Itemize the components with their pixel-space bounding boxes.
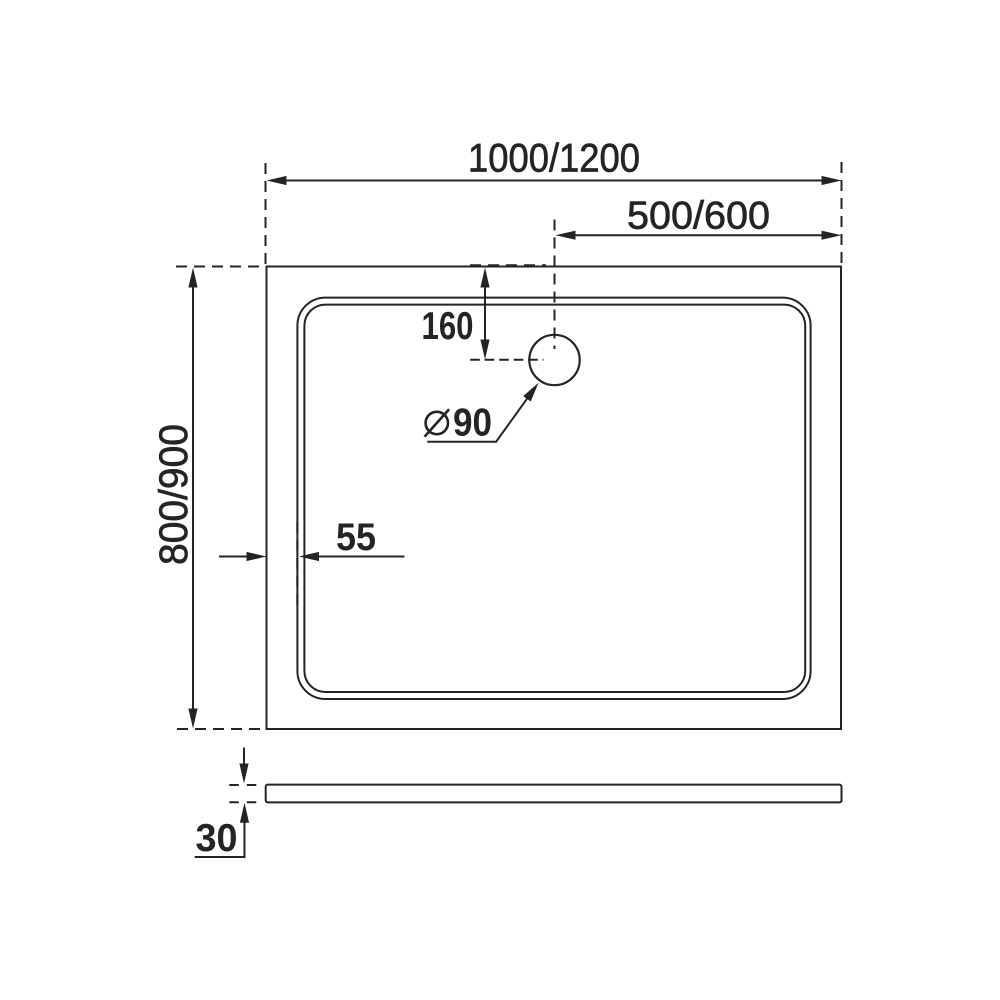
svg-text:800/900: 800/900 xyxy=(152,424,196,565)
svg-text:1000/1200: 1000/1200 xyxy=(468,137,640,181)
svg-text:30: 30 xyxy=(196,817,238,860)
svg-text:90: 90 xyxy=(453,402,492,445)
svg-text:500/600: 500/600 xyxy=(627,195,770,238)
svg-text:55: 55 xyxy=(336,516,376,559)
svg-text:160: 160 xyxy=(422,305,474,348)
